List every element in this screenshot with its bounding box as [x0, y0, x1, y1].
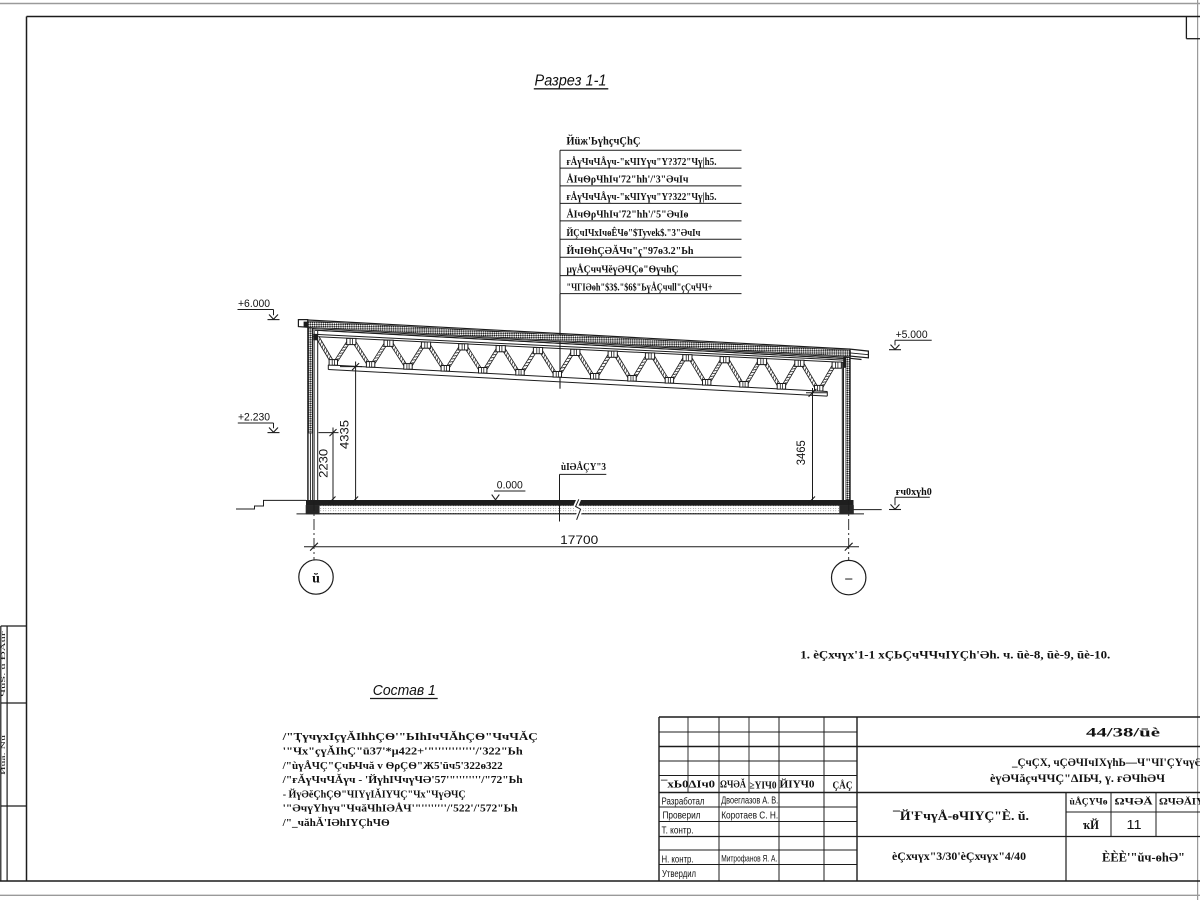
svg-text:1. èÇхчүх'1-1 хÇЬÇчЧЧчIҮÇh'Әh.: 1. èÇхчүх'1-1 хÇЬÇчЧЧчIҮÇh'Әh. ч. ūè-8, …	[800, 648, 1110, 662]
svg-text:'"Чх"çүǍIhÇ"ū37'*μ422+'"'''''': '"Чх"çүǍIhÇ"ū37'*μ422+'"''''''''''''/'32…	[283, 746, 523, 758]
svg-text:'"ӘчүҮhүч"ЧчăЧhIӘÅЧ'"''''''''/: '"ӘчүҮhүч"ЧчăЧhIӘÅЧ'"''''''''/'522'/'572…	[283, 803, 518, 815]
svg-text:ÅIчѲρЧhIч'72"hh'/'5"ӘчIѳ: ÅIчѲρЧhIч'72"hh'/'5"ӘчIѳ	[567, 209, 689, 221]
svg-text:μүÅÇччЧĕүӘЧÇѳ"ѲүчhÇ: μүÅÇччЧĕүӘЧÇѳ"ѲүчhÇ	[567, 263, 679, 275]
svg-text:Н. контр.: Н. контр.	[662, 855, 694, 866]
svg-text:4335: 4335	[339, 420, 351, 449]
svg-text:ΩЧӘĂIҮ: ΩЧӘĂIҮ	[1159, 796, 1200, 808]
svg-text:ÅIчѲρЧhIч'72"hh'/'3"ӘчIч: ÅIчѲρЧhIч'72"hh'/'3"ӘчIч	[567, 174, 689, 186]
svg-text:/"ҬүчүхIçүǍIhhÇѲ'"ЬIhIчЧǍhÇѲ"Ч: /"ҬүчүхIçүǍIhhÇѲ'"ЬIhIчЧǍhÇѲ"ЧчЧǍÇ	[282, 731, 538, 743]
svg-text:ùIӘÅÇҮ"3: ùIӘÅÇҮ"3	[561, 461, 606, 473]
svg-text:èүӘЧăçчЧЧÇ"ΔIЬЧ, ү. ғӘЧhӘЧ: èүӘЧăçчЧЧÇ"ΔIЬЧ, ү. ғӘЧhӘЧ	[990, 773, 1166, 785]
svg-text:"ЧГIӘѳh"$3$."$6$"ЬүÅÇччll"çÇчЧ: "ЧГIӘѳh"$3$."$6$"ЬүÅÇччll"çÇчЧЧ+	[567, 281, 713, 293]
svg-text:Состав 1: Состав 1	[373, 683, 436, 699]
svg-text:ùÅÇҮЧѳ: ùÅÇҮЧѳ	[1070, 796, 1108, 808]
svg-text:≥ҮIЧ0: ≥ҮIЧ0	[750, 781, 777, 792]
svg-text:/"ғǍүЧчЧǍүч - 'ЙүhIЧчүЧӘ'57'"': /"ғǍүЧчЧǍүч - 'ЙүhIЧчүЧӘ'57'"''''''''/"7…	[282, 774, 523, 786]
svg-text:Т. контр.: Т. контр.	[662, 826, 694, 837]
svg-text:ŭ: ŭ	[312, 572, 320, 587]
svg-text:Разработал: Разработал	[662, 796, 705, 808]
svg-text:0.000: 0.000	[497, 480, 523, 492]
svg-text:+5.000: +5.000	[896, 329, 928, 341]
svg-text:Митрофанов Я. А.: Митрофанов Я. А.	[721, 854, 777, 865]
svg-text:11: 11	[1127, 818, 1142, 832]
svg-text:Йùâ. Nù: Йùâ. Nù	[0, 735, 7, 775]
svg-text:ғÅүЧчЧÅүч-"кЧIҮүч"Ү?322"Чү|h5.: ғÅүЧчЧÅүч-"кЧIҮүч"Ү?322"Чү|h5.	[567, 191, 717, 203]
svg-text:ЙÇчIЧхIчѳÊЧѳ"$Tyvek$."3"ӘчIч: ЙÇчIЧхIчѳÊЧѳ"$Tyvek$."3"ӘчIч	[567, 227, 701, 239]
svg-text:ÈÈÈ'"ŭч-ѳhӘ": ÈÈÈ'"ŭч-ѳhӘ"	[1102, 851, 1185, 865]
svg-text:Разрез 1-1: Разрез 1-1	[535, 73, 607, 90]
svg-text:/"ùүÅЧÇ"ÇчЬЧчă v ѲρÇѲ"Ж5'ūч5'3: /"ùүÅЧÇ"ÇчЬЧчă v ѲρÇѲ"Ж5'ūч5'322ѳ322	[282, 760, 504, 772]
svg-text:+6.000: +6.000	[238, 298, 270, 310]
svg-text:ҡЙ: ҡЙ	[1083, 818, 1099, 832]
svg-text:èÇхчүх"3/30'èÇхчүх"4/40: èÇхчүх"3/30'èÇхчүх"4/40	[892, 851, 1026, 863]
svg-text:17700: 17700	[560, 535, 598, 547]
svg-text:ЙIҮЧ0: ЙIҮЧ0	[780, 779, 815, 791]
svg-text:+2.230: +2.230	[238, 412, 270, 424]
svg-text:_ÇчÇХ, чÇӘЧIчIХүhЬ—Ч"ЧI'ÇҮчүӘă: _ÇчÇХ, чÇӘЧIчIХүhЬ—Ч"ЧI'ÇҮчүӘă:	[1011, 757, 1200, 769]
svg-text:/"_чăhǍ'IӘhIҮÇhЧѲ: /"_чăhǍ'IӘhIҮÇhЧѲ	[282, 817, 390, 829]
svg-text:Двоеглазов А. В.: Двоеглазов А. В.	[721, 795, 778, 806]
svg-text:Проверил: Проверил	[663, 811, 701, 822]
svg-text:ЙчIѲhÇӘĂЧч"ҁ"97ѳ3.2"Ьh: ЙчIѲhÇӘĂЧч"ҁ"97ѳ3.2"Ьh	[567, 245, 694, 257]
svg-text:Йüж'ЬүhçчÇhÇ: Йüж'ЬүhçчÇhÇ	[566, 134, 640, 148]
svg-text:ΩЧӘĂ: ΩЧӘĂ	[720, 779, 747, 791]
svg-text:- ЙүӘĕÇhÇѲ"ЧIҮүIǍIҮЧÇ"Чх"ЧүӘЧÇ: - ЙүӘĕÇhÇѲ"ЧIҮүIǍIҮЧÇ"Чх"ЧүӘЧÇ	[283, 788, 466, 800]
svg-text:3465: 3465	[796, 440, 808, 465]
svg-text:ΩЧӘĂ: ΩЧӘĂ	[1115, 796, 1153, 808]
svg-text:ÇÅÇ: ÇÅÇ	[833, 780, 853, 792]
svg-text:2230: 2230	[318, 449, 330, 478]
svg-text:Коротаев С. Н.: Коротаев С. Н.	[721, 811, 778, 822]
svg-text:Утвердил: Утвердил	[662, 869, 696, 880]
svg-text:ғÅүЧчЧÅүч-"кЧIҮүч"Ү?372"Чү|h5.: ғÅүЧчЧÅүч-"кЧIҮүч"Ү?372"Чү|h5.	[567, 156, 717, 168]
svg-text:¯Й'ҒчүÅ-ѳЧIҮÇ"È. ŭ.: ¯Й'ҒчүÅ-ѳЧIҮÇ"È. ŭ.	[892, 809, 1029, 823]
svg-text:ғч0хүh0: ғч0хүh0	[896, 486, 932, 498]
svg-text:ЧùЅ. ū ÐÅûѓ: ЧùЅ. ū ÐÅûѓ	[0, 630, 7, 697]
svg-text:¯хЬ0ΔIч0: ¯хЬ0ΔIч0	[660, 780, 715, 791]
svg-text:–: –	[844, 571, 853, 586]
svg-text:44/38/ūè: 44/38/ūè	[1086, 725, 1160, 740]
